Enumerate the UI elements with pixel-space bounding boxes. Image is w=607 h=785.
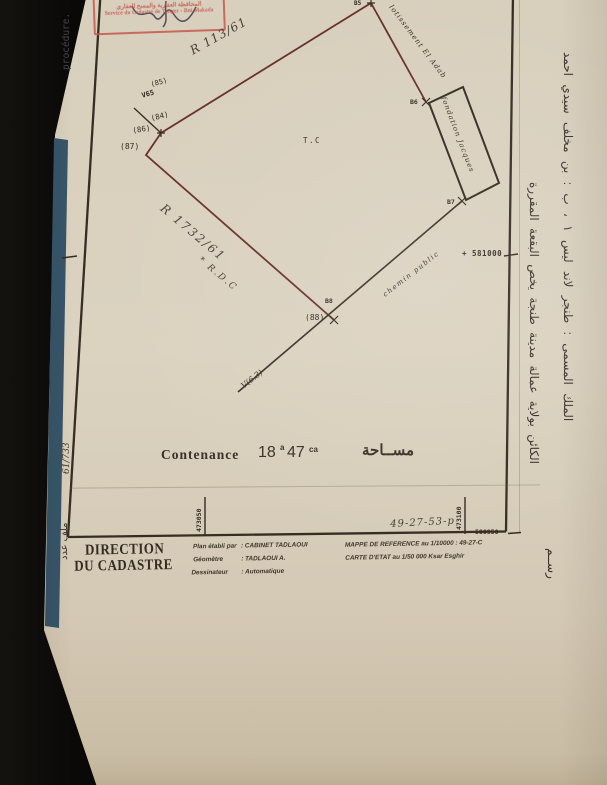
- photographed-cadastral-document: المحافظة العقارية والمسح العقاري Service…: [0, 0, 607, 785]
- contenance-label: Contenance: [161, 448, 239, 462]
- plan-author-label: Plan établi par: [193, 544, 237, 551]
- label-pt87: (87): [120, 143, 139, 151]
- arabic-note-property-name: الملك المسمى : طنجر لاند ليس ١ ، ب : بن …: [562, 52, 574, 421]
- plan-linework: [0, 0, 607, 785]
- label-b5: B5: [354, 1, 361, 7]
- label-x-473100: 473100: [456, 507, 463, 530]
- label-pt88: (88): [305, 314, 324, 322]
- parcel-boundary: [146, 3, 426, 320]
- margin-file-label: ملف عدد: [60, 523, 70, 560]
- arabic-note-location: الكائن بولاية عمالة مدينة طنجة يخص البقع…: [528, 182, 540, 464]
- contenance-a-val: 47: [287, 445, 305, 461]
- draftsman-value: : Automatique: [241, 569, 284, 576]
- contenance-ca-unit: ca: [309, 446, 318, 454]
- arabic-note-deed: رســم: [546, 548, 558, 579]
- org-name-line2: DU CADASTRE: [74, 557, 173, 574]
- contenance-arabic: مســاحة: [362, 443, 414, 458]
- grid-ticks: [62, 254, 521, 536]
- paper-crease-vertical: [519, 0, 520, 532]
- plan-author-value: : CABINET TADLAOUI: [241, 542, 308, 550]
- surveyor-label: Géomètre: [193, 557, 223, 564]
- label-b6: B6: [410, 99, 418, 106]
- margin-file-number: 61/733: [63, 442, 72, 474]
- contenance-ha: 18: [258, 445, 276, 461]
- label-y-580950: 580950: [475, 529, 498, 536]
- label-b7: B7: [447, 199, 455, 206]
- label-y-581000: + 581000: [462, 250, 502, 258]
- margin-note-procedure: procédure.: [62, 13, 72, 70]
- chemin-public-line: [238, 201, 462, 392]
- label-b8: B8: [325, 298, 333, 305]
- contenance-a-unit: a: [280, 444, 284, 452]
- label-tc: T.C: [303, 137, 321, 145]
- label-x-473050: 473050: [196, 509, 203, 532]
- draftsman-label: Dessinateur: [191, 570, 228, 577]
- surveyor-value: : TADLAOUI A.: [241, 556, 285, 563]
- org-name-line1: DIRECTION: [85, 541, 164, 558]
- office-stamp: المحافظة العقارية والمسح العقاري Service…: [92, 0, 226, 35]
